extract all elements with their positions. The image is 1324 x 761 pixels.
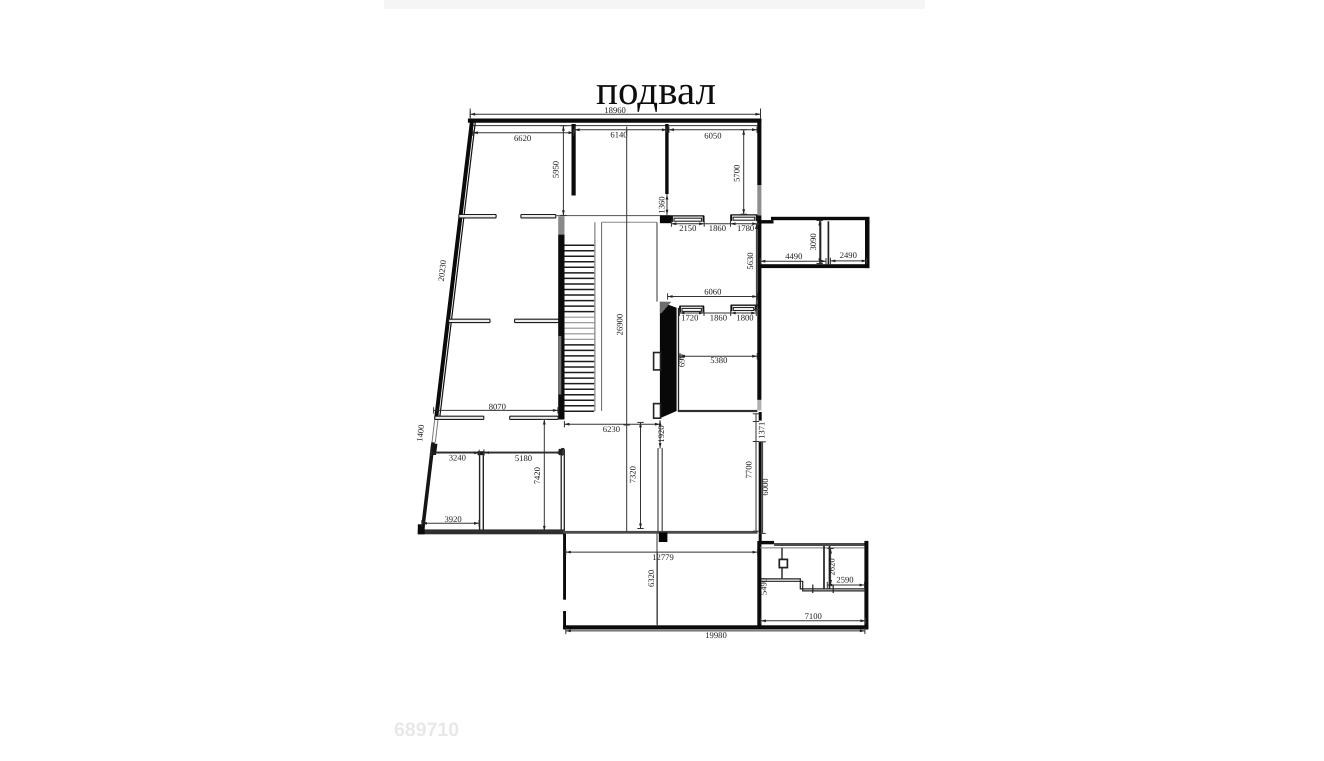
svg-text:1800: 1800 <box>736 313 753 323</box>
svg-text:1371: 1371 <box>756 422 766 439</box>
svg-text:1360: 1360 <box>656 196 666 213</box>
svg-text:6050: 6050 <box>704 131 721 141</box>
svg-text:689710: 689710 <box>394 719 459 741</box>
svg-text:19980: 19980 <box>705 630 726 640</box>
svg-text:6060: 6060 <box>704 287 721 297</box>
svg-text:1920: 1920 <box>656 425 666 442</box>
svg-text:2620: 2620 <box>827 558 837 575</box>
svg-text:18960: 18960 <box>604 105 625 115</box>
svg-text:3920: 3920 <box>445 514 462 524</box>
svg-text:1720: 1720 <box>681 313 698 323</box>
svg-text:1860: 1860 <box>709 223 726 233</box>
svg-text:12779: 12779 <box>652 552 673 562</box>
svg-text:7700: 7700 <box>743 461 753 478</box>
svg-text:2490: 2490 <box>840 250 857 260</box>
svg-text:7320: 7320 <box>628 466 638 483</box>
svg-text:1400: 1400 <box>414 424 426 442</box>
svg-text:5380: 5380 <box>710 355 727 365</box>
svg-text:3240: 3240 <box>449 453 466 463</box>
svg-text:5630: 5630 <box>745 252 755 269</box>
svg-text:8070: 8070 <box>489 402 506 412</box>
svg-text:1780: 1780 <box>737 223 754 233</box>
svg-text:2590: 2590 <box>836 575 853 585</box>
svg-text:4490: 4490 <box>785 251 802 261</box>
svg-text:6000: 6000 <box>760 478 770 495</box>
svg-text:5700: 5700 <box>731 165 741 182</box>
svg-text:1860: 1860 <box>710 313 727 323</box>
svg-text:7100: 7100 <box>805 611 822 621</box>
svg-text:6140: 6140 <box>610 129 627 139</box>
svg-text:6320: 6320 <box>646 570 656 587</box>
svg-text:5950: 5950 <box>551 161 561 178</box>
svg-text:6230: 6230 <box>603 424 620 434</box>
svg-text:3090: 3090 <box>808 233 818 250</box>
svg-text:7420: 7420 <box>532 467 542 484</box>
svg-text:6620: 6620 <box>514 133 531 143</box>
svg-text:5490: 5490 <box>758 578 768 595</box>
svg-text:26900: 26900 <box>615 314 625 335</box>
svg-text:2150: 2150 <box>679 223 696 233</box>
svg-text:690: 690 <box>676 354 686 367</box>
svg-text:5180: 5180 <box>515 453 532 463</box>
